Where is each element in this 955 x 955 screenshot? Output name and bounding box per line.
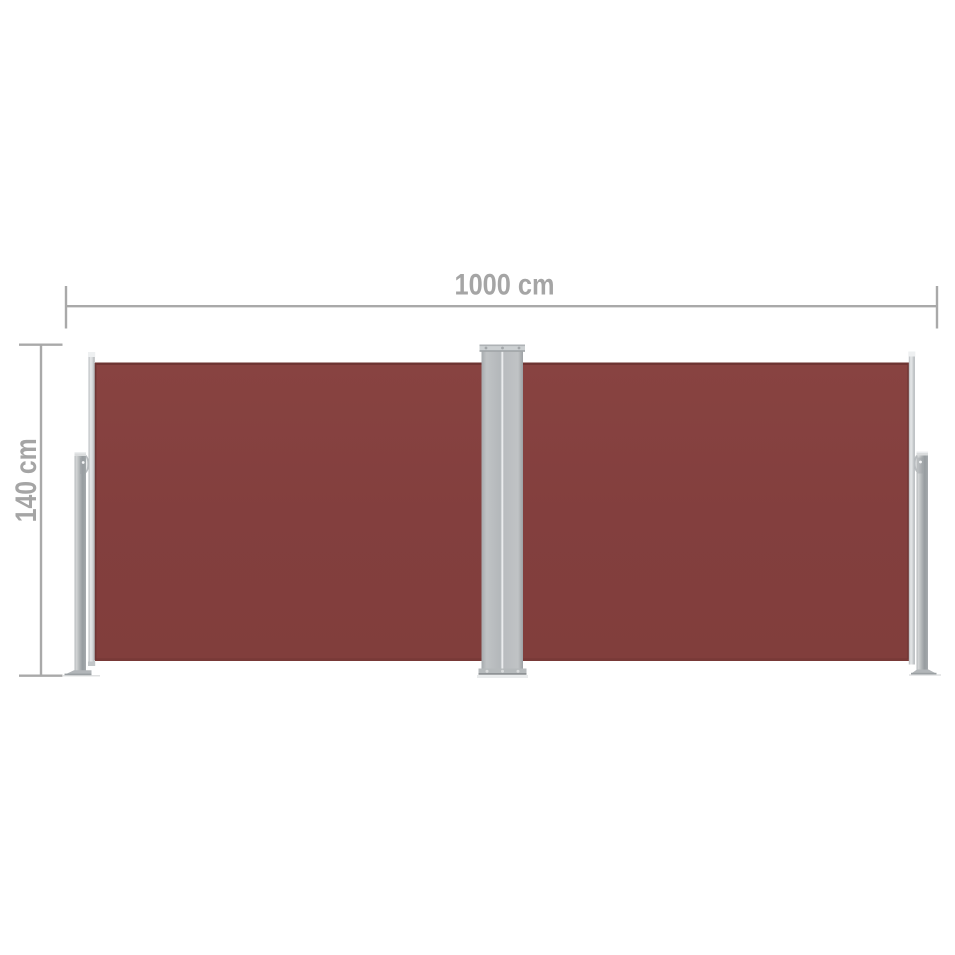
svg-text:1000 cm: 1000 cm bbox=[455, 269, 555, 302]
svg-text:140 cm: 140 cm bbox=[10, 438, 43, 522]
